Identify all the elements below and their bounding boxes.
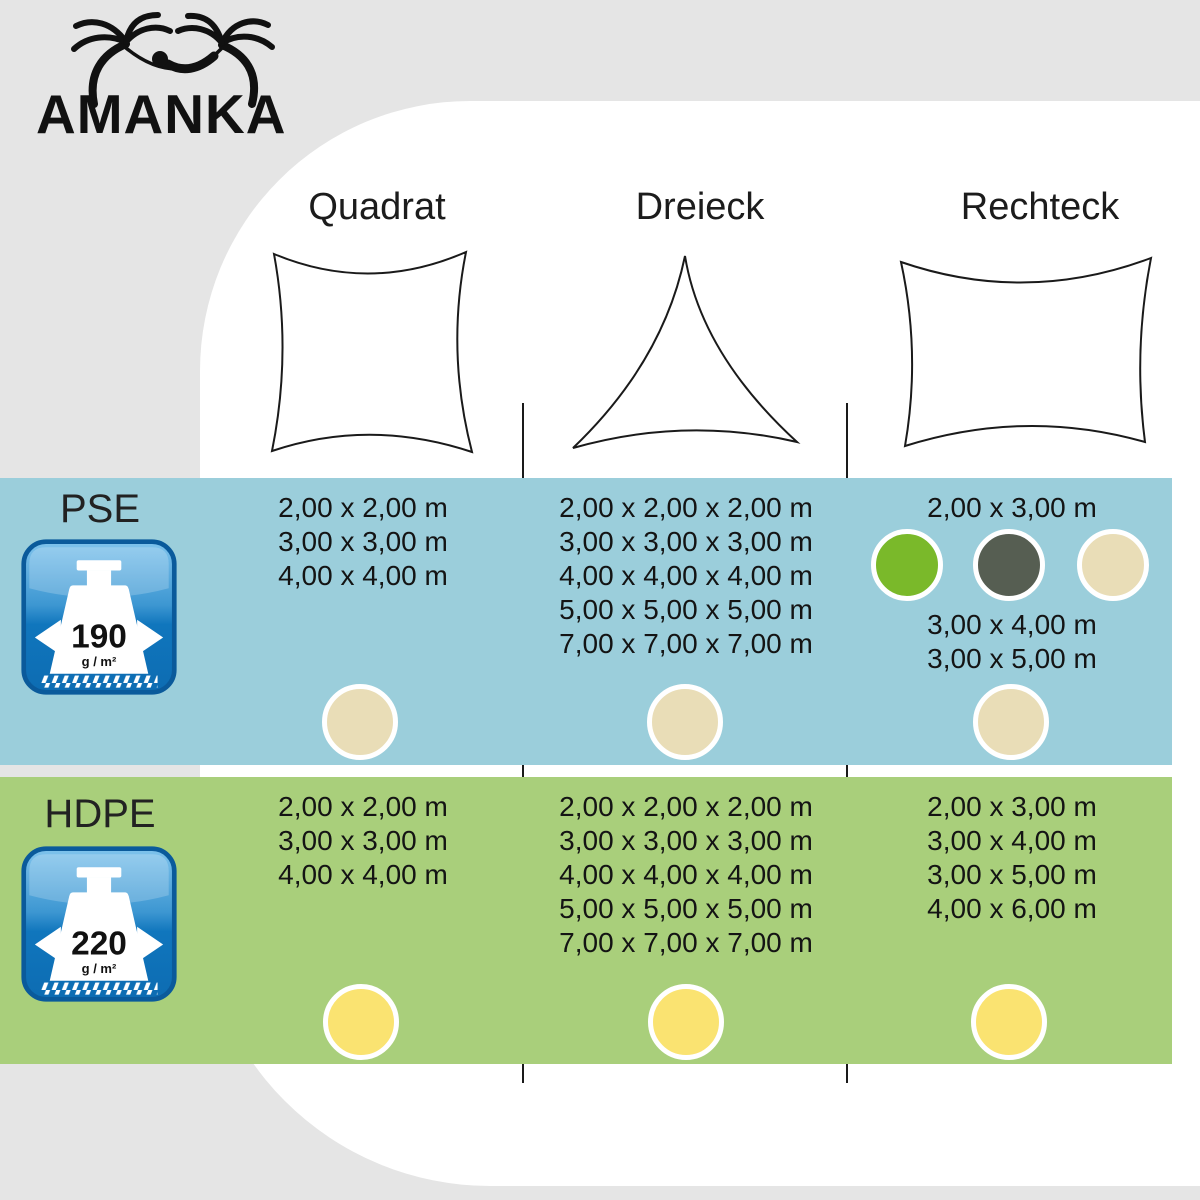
- size-line: 2,00 x 2,00 x 2,00 m: [559, 491, 813, 525]
- pse-color-dot: [322, 684, 398, 760]
- size-line: 3,00 x 5,00 m: [927, 858, 1097, 892]
- material-label-pse: PSE: [60, 487, 140, 532]
- size-line: 3,00 x 3,00 m: [278, 824, 448, 858]
- column-header-quadrat: Quadrat: [308, 186, 445, 229]
- size-line: 2,00 x 2,00 x 2,00 m: [559, 790, 813, 824]
- size-line: 2,00 x 3,00 m: [927, 790, 1097, 824]
- size-line: 4,00 x 4,00 x 4,00 m: [559, 858, 813, 892]
- size-line: 2,00 x 2,00 m: [278, 491, 448, 525]
- hdpe-quadrat-sizes: 2,00 x 2,00 m 3,00 x 3,00 m 4,00 x 4,00 …: [278, 790, 448, 892]
- size-line: 4,00 x 6,00 m: [927, 892, 1097, 926]
- column-header-dreieck: Dreieck: [636, 186, 765, 229]
- person-icon: [152, 51, 168, 67]
- brand-text: AMANKA: [36, 83, 286, 140]
- weight-value: 190: [71, 619, 127, 656]
- weight-unit: g / m²: [82, 961, 117, 976]
- color-swatch-anthracite: [973, 529, 1045, 601]
- size-line: 4,00 x 4,00 m: [278, 559, 448, 593]
- size-line: 3,00 x 4,00 m: [927, 608, 1097, 642]
- pse-rechteck-sizes-bottom: 3,00 x 4,00 m 3,00 x 5,00 m: [927, 608, 1097, 676]
- size-line: 3,00 x 3,00 m: [278, 525, 448, 559]
- color-swatch-green: [871, 529, 943, 601]
- material-label-hdpe: HDPE: [44, 792, 155, 837]
- size-line: 5,00 x 5,00 x 5,00 m: [559, 593, 813, 627]
- column-header-rechteck: Rechteck: [961, 186, 1119, 229]
- size-line: 7,00 x 7,00 x 7,00 m: [559, 627, 813, 661]
- weight-unit: g / m²: [82, 654, 117, 669]
- hatch-stripe: [40, 676, 157, 688]
- weight-220-icon: 220 g / m²: [20, 845, 178, 1003]
- pse-quadrat-sizes: 2,00 x 2,00 m 3,00 x 3,00 m 4,00 x 4,00 …: [278, 491, 448, 593]
- hatch-stripe: [40, 983, 157, 995]
- size-line: 4,00 x 4,00 x 4,00 m: [559, 559, 813, 593]
- hdpe-color-dot: [648, 984, 724, 1060]
- pse-color-dot: [973, 684, 1049, 760]
- hdpe-color-dot: [323, 984, 399, 1060]
- size-line: 7,00 x 7,00 x 7,00 m: [559, 926, 813, 960]
- weight-value: 220: [71, 926, 127, 963]
- hdpe-color-dot: [971, 984, 1047, 1060]
- pse-color-dot: [647, 684, 723, 760]
- pse-rechteck-size-top: 2,00 x 3,00 m: [927, 491, 1097, 525]
- pse-dreieck-sizes: 2,00 x 2,00 x 2,00 m 3,00 x 3,00 x 3,00 …: [559, 491, 813, 661]
- size-line: 5,00 x 5,00 x 5,00 m: [559, 892, 813, 926]
- triangle-sail-icon: [565, 250, 805, 458]
- hdpe-dreieck-sizes: 2,00 x 2,00 x 2,00 m 3,00 x 3,00 x 3,00 …: [559, 790, 813, 960]
- rectangle-sail-icon: [895, 250, 1157, 452]
- size-line: 2,00 x 2,00 m: [278, 790, 448, 824]
- infographic-canvas: AMANKA Quadrat Dreieck Rechteck PSE: [0, 0, 1200, 1200]
- size-line: 4,00 x 4,00 m: [278, 858, 448, 892]
- size-line: 3,00 x 3,00 x 3,00 m: [559, 824, 813, 858]
- hdpe-rechteck-sizes: 2,00 x 3,00 m 3,00 x 4,00 m 3,00 x 5,00 …: [927, 790, 1097, 926]
- square-sail-icon: [262, 246, 478, 460]
- color-swatch-beige: [1077, 529, 1149, 601]
- size-line: 3,00 x 5,00 m: [927, 642, 1097, 676]
- amanka-logo: AMANKA: [28, 12, 318, 140]
- size-line: 3,00 x 4,00 m: [927, 824, 1097, 858]
- size-line: 3,00 x 3,00 x 3,00 m: [559, 525, 813, 559]
- weight-190-icon: 190 g / m²: [20, 538, 178, 696]
